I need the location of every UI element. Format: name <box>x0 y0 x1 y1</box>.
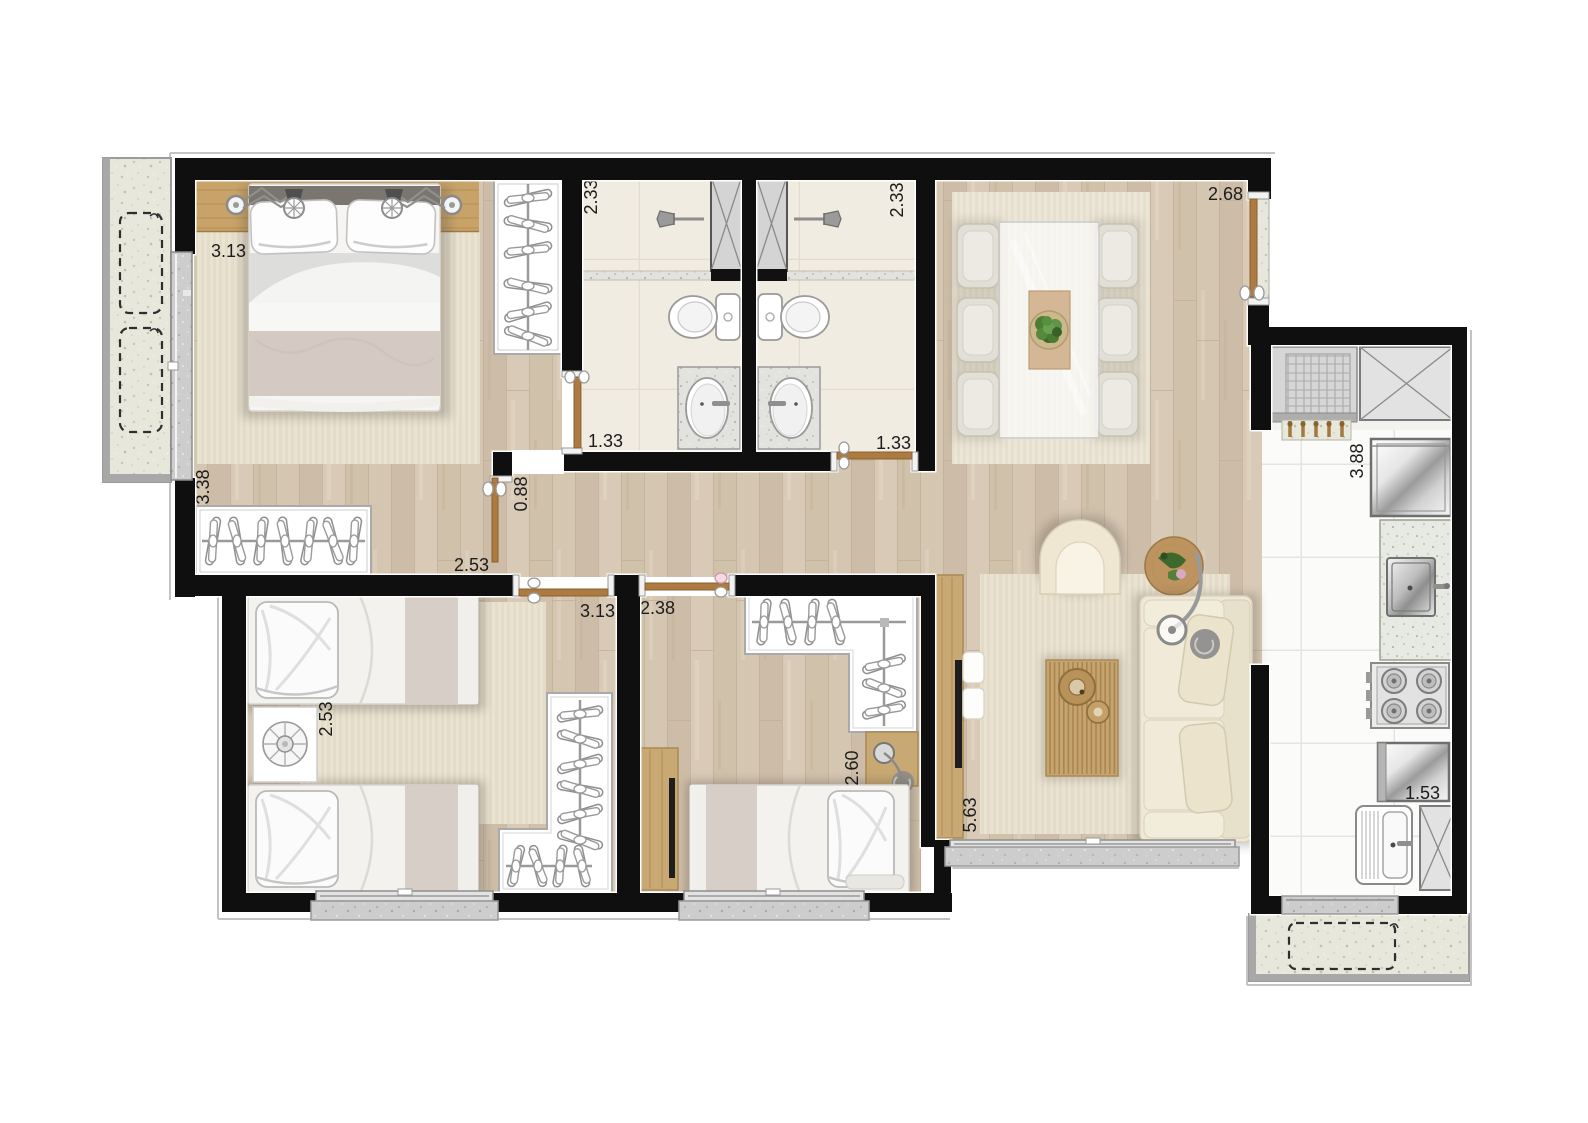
svg-text:5.63: 5.63 <box>960 797 980 832</box>
svg-text:1.33: 1.33 <box>876 433 911 453</box>
svg-text:2.68: 2.68 <box>1208 184 1243 204</box>
svg-text:1.33: 1.33 <box>588 431 623 451</box>
svg-text:2.33: 2.33 <box>581 179 601 214</box>
svg-text:3.13: 3.13 <box>211 241 246 261</box>
svg-text:1.53: 1.53 <box>1405 783 1440 803</box>
svg-text:3.88: 3.88 <box>1347 443 1367 478</box>
svg-text:3.13: 3.13 <box>580 601 615 621</box>
svg-text:2.53: 2.53 <box>454 555 489 575</box>
svg-text:0.88: 0.88 <box>511 476 531 511</box>
svg-text:2.33: 2.33 <box>887 182 907 217</box>
svg-text:2.60: 2.60 <box>842 750 862 785</box>
svg-text:2.38: 2.38 <box>640 598 675 618</box>
svg-text:2.53: 2.53 <box>316 701 336 736</box>
